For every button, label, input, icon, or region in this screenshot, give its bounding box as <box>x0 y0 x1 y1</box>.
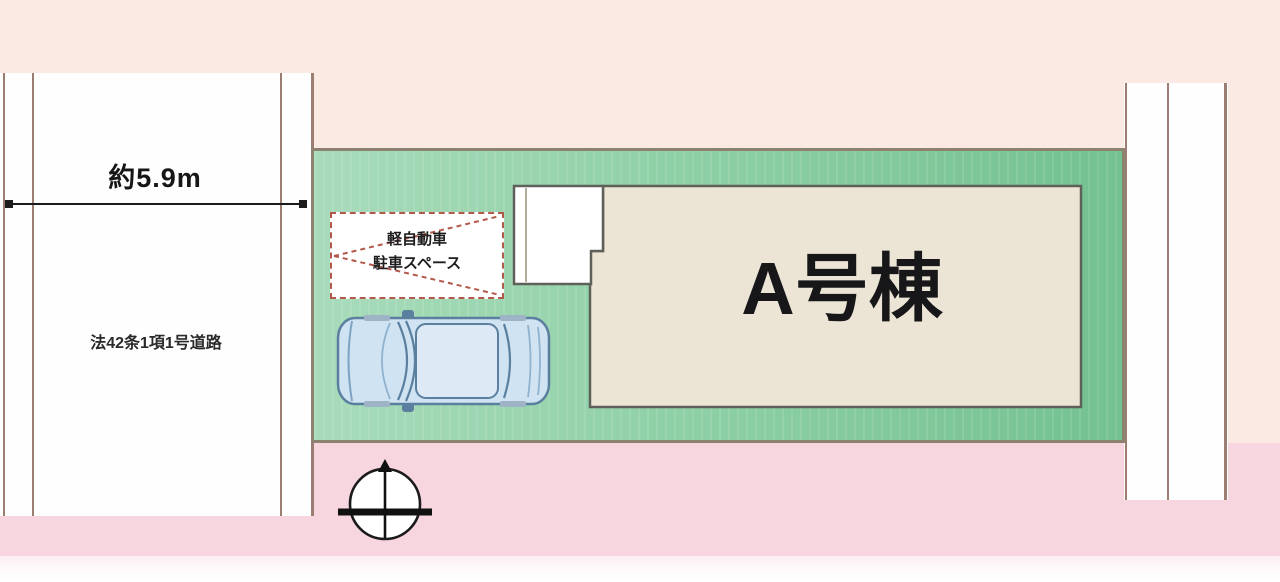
road-inner-line <box>1167 83 1169 500</box>
building-label: A号棟 <box>603 252 1081 326</box>
road-width-label: 約5.9m <box>55 156 255 195</box>
road-edge-line <box>1125 83 1127 500</box>
road-name-label: 法42条1項1号道路 <box>56 329 256 353</box>
bottom-edge-strip <box>0 556 1280 582</box>
parking-label-line2: 駐車スペース <box>373 255 461 272</box>
road-inner-line <box>280 73 282 516</box>
dimension-endpoint <box>299 200 307 208</box>
building-entrance-porch <box>514 186 603 284</box>
north-compass-icon <box>335 456 435 548</box>
parking-label-line1: 軽自動車 <box>387 231 447 248</box>
right-road <box>1124 83 1228 500</box>
car-top-view-icon <box>332 310 558 412</box>
road-inner-line <box>32 73 34 516</box>
road-edge-line <box>1224 83 1227 500</box>
dimension-endpoint <box>5 200 13 208</box>
road-edge-line <box>3 73 5 516</box>
left-road <box>0 73 314 516</box>
parking-space-label: 軽自動車 駐車スペース <box>332 228 502 276</box>
road-width-dimension-line <box>8 203 304 205</box>
parking-space-box: 軽自動車 駐車スペース <box>330 212 504 299</box>
